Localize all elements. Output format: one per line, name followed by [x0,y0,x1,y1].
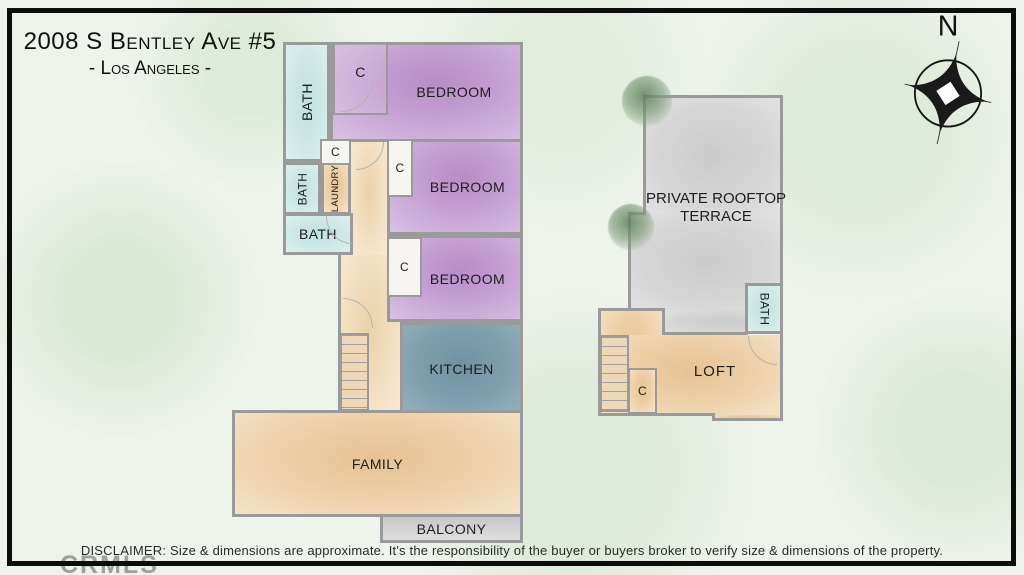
wall-segment [712,418,783,421]
room-kitchen: KITCHEN [400,322,523,415]
room-label: FAMILY [352,456,403,472]
tree-icon [622,76,672,126]
address-title: 2008 S Bentley Ave #5 [20,28,280,56]
wall-segment [598,308,665,311]
room-label: BATH [299,83,315,121]
stairs-upper [600,335,629,412]
room-label: BALCONY [417,521,487,537]
closet-hall: C [320,139,351,165]
room-label: LAUNDRY [331,165,342,212]
compass-icon: N [902,6,994,149]
floorplan-page: 2008 S Bentley Ave #5 - Los Angeles - N … [0,0,1024,575]
room-bath-mid: BATH [283,162,321,215]
room-label: BEDROOM [416,84,491,100]
room-bath-upper: BATH [745,283,783,334]
stairs-main [340,333,369,411]
closet-label: C [638,384,647,398]
city-subtitle: - Los Angeles - [20,58,280,80]
closet-bedroom-2: C [387,139,413,197]
room-label: BEDROOM [430,271,505,287]
closet-label: C [395,161,404,175]
closet-bedroom-3: C [387,237,422,297]
closet-label: C [331,145,340,159]
closet-label: C [355,64,366,80]
disclaimer-text: DISCLAIMER: Size & dimensions are approx… [0,543,1024,558]
wall-segment [780,95,783,421]
loft-label: LOFT [672,363,758,380]
room-family: FAMILY [232,410,523,517]
compass-north-letter: N [938,10,959,42]
room-balcony: BALCONY [380,514,523,543]
room-laundry: LAUNDRY [321,162,351,215]
wall-segment [662,332,748,335]
closet-loft: C [628,368,657,414]
wall-segment [662,308,665,335]
terrace-label: PRIVATE ROOFTOP TERRACE [636,190,796,226]
room-label: KITCHEN [429,361,493,377]
page-title: 2008 S Bentley Ave #5 - Los Angeles - [20,28,280,80]
room-label: BATH [757,292,771,325]
closet-label: C [400,260,409,274]
room-label: BEDROOM [430,179,505,195]
room-label: BATH [295,172,309,205]
